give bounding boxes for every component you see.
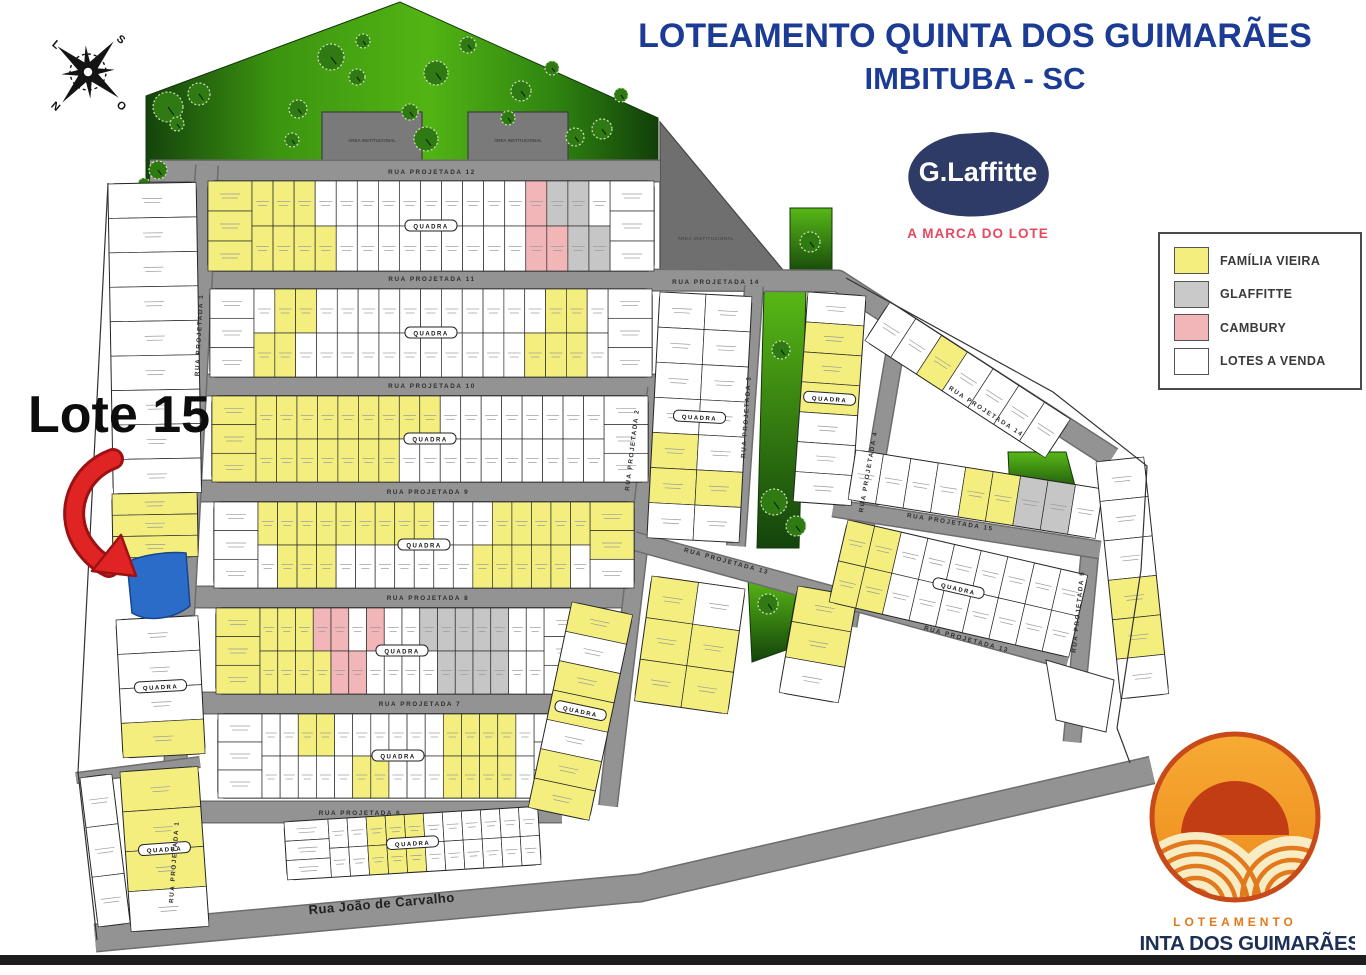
lot bbox=[208, 241, 252, 271]
lot bbox=[1096, 457, 1148, 501]
lot bbox=[504, 289, 525, 333]
tree-icon bbox=[460, 37, 476, 53]
quadra-block bbox=[108, 182, 201, 493]
lot bbox=[1113, 615, 1165, 659]
lot bbox=[313, 608, 331, 651]
lot bbox=[425, 756, 443, 798]
lot bbox=[254, 289, 275, 333]
lot bbox=[482, 838, 503, 868]
lot bbox=[420, 651, 438, 694]
legend-item: GLAFFITTE bbox=[1174, 281, 1346, 308]
lot bbox=[700, 365, 748, 403]
lot bbox=[316, 756, 334, 798]
lot bbox=[379, 333, 400, 377]
lot bbox=[444, 840, 465, 870]
lot bbox=[297, 439, 317, 482]
legend-swatch bbox=[1174, 247, 1209, 274]
lot bbox=[80, 774, 118, 828]
lot bbox=[358, 439, 378, 482]
tree-icon bbox=[414, 127, 438, 151]
street-label: RUA PROJETADA 11 bbox=[388, 276, 475, 283]
street-label: RUA PROJETADA 10 bbox=[388, 383, 476, 390]
lot bbox=[395, 545, 415, 588]
compass-icon: L S N O bbox=[36, 20, 140, 124]
lot bbox=[520, 835, 541, 865]
lot bbox=[252, 226, 273, 271]
lot bbox=[525, 333, 546, 377]
lot bbox=[216, 637, 260, 666]
lot bbox=[349, 846, 370, 876]
quadra-label: QUADRA bbox=[380, 755, 415, 761]
lot bbox=[357, 226, 378, 271]
lot bbox=[543, 439, 563, 482]
lot bbox=[440, 439, 460, 482]
lot bbox=[112, 493, 197, 516]
lot bbox=[531, 545, 551, 588]
quadra-label: QUADRA bbox=[412, 438, 447, 444]
lot bbox=[275, 333, 296, 377]
lot bbox=[492, 502, 512, 545]
lot bbox=[317, 439, 337, 482]
lot bbox=[368, 845, 389, 875]
lot bbox=[218, 770, 262, 798]
lot bbox=[498, 714, 516, 756]
lot bbox=[441, 333, 462, 377]
lot bbox=[256, 396, 276, 439]
quadra-block: QUADRA bbox=[214, 502, 634, 588]
lot bbox=[484, 181, 505, 226]
lot bbox=[276, 396, 296, 439]
lot bbox=[646, 576, 698, 624]
lot bbox=[793, 472, 853, 506]
lot bbox=[425, 714, 443, 756]
lot bbox=[480, 809, 501, 839]
lot bbox=[693, 505, 741, 543]
lot bbox=[262, 756, 280, 798]
lot bbox=[379, 289, 400, 333]
lot bbox=[795, 442, 855, 476]
quadra-label: QUADRA bbox=[406, 544, 441, 550]
brand-tagline: A MARCA DO LOTE bbox=[907, 226, 1049, 241]
lot bbox=[121, 719, 205, 758]
lot bbox=[462, 333, 483, 377]
lot bbox=[338, 396, 358, 439]
lot bbox=[400, 289, 421, 333]
lot bbox=[522, 396, 542, 439]
lot bbox=[278, 545, 298, 588]
lot bbox=[399, 439, 419, 482]
lot bbox=[563, 439, 583, 482]
legend-swatch bbox=[1174, 348, 1209, 375]
tree-icon bbox=[545, 61, 559, 75]
lot bbox=[260, 608, 278, 651]
lot bbox=[375, 545, 395, 588]
lot bbox=[330, 847, 351, 877]
tree-icon bbox=[592, 119, 612, 139]
lot bbox=[566, 333, 587, 377]
lot bbox=[389, 756, 407, 798]
quadra-block: QUADRA bbox=[116, 616, 205, 758]
lot bbox=[491, 608, 509, 651]
lot bbox=[693, 583, 745, 631]
lot bbox=[280, 714, 298, 756]
lot bbox=[216, 665, 260, 694]
tree-icon bbox=[424, 61, 448, 85]
lot bbox=[280, 756, 298, 798]
lot bbox=[420, 226, 441, 271]
quadra-block: QUADRA bbox=[120, 767, 209, 932]
brand-logo: G.Laffitte A MARCA DO LOTE bbox=[888, 126, 1068, 246]
lot bbox=[110, 320, 199, 356]
lot bbox=[296, 651, 314, 694]
lot bbox=[210, 348, 254, 377]
lot bbox=[512, 502, 532, 545]
street-label: RUA PROJETADA 9 bbox=[387, 489, 470, 496]
lot bbox=[547, 181, 568, 226]
lot bbox=[442, 181, 463, 226]
lot bbox=[356, 502, 376, 545]
lot bbox=[298, 756, 316, 798]
tree-icon bbox=[349, 69, 365, 85]
lot bbox=[453, 545, 473, 588]
lot bbox=[483, 289, 504, 333]
institutional-area bbox=[660, 122, 788, 276]
lot bbox=[112, 514, 197, 537]
footer-logo-line1: LOTEAMENTO bbox=[1173, 915, 1297, 929]
lot bbox=[505, 226, 526, 271]
lot bbox=[315, 181, 336, 226]
lot bbox=[317, 545, 337, 588]
street-label: RUA PROJETADA 6 bbox=[319, 810, 402, 817]
lot bbox=[608, 318, 652, 347]
lot bbox=[504, 333, 525, 377]
lot bbox=[518, 806, 539, 836]
lot bbox=[214, 559, 258, 588]
lot bbox=[798, 412, 858, 446]
lot bbox=[501, 837, 522, 867]
lot bbox=[499, 808, 520, 838]
compass-n: N bbox=[48, 100, 62, 114]
legend-swatch bbox=[1174, 314, 1209, 341]
lot bbox=[455, 608, 473, 651]
tree-icon bbox=[800, 232, 820, 252]
lot bbox=[687, 624, 739, 672]
lot bbox=[278, 651, 296, 694]
lot bbox=[512, 545, 532, 588]
lot bbox=[218, 742, 262, 770]
lot bbox=[273, 181, 294, 226]
lot bbox=[702, 330, 750, 368]
tree-icon bbox=[149, 161, 167, 179]
lot bbox=[608, 289, 652, 318]
lot bbox=[547, 226, 568, 271]
lot bbox=[551, 502, 571, 545]
lot bbox=[551, 545, 571, 588]
lot bbox=[208, 181, 252, 211]
lot bbox=[604, 396, 648, 425]
lot bbox=[317, 502, 337, 545]
lot bbox=[316, 333, 337, 377]
lot bbox=[491, 651, 509, 694]
tree-icon bbox=[318, 44, 344, 70]
quadra-label: QUADRA bbox=[384, 650, 419, 656]
lot bbox=[86, 824, 124, 878]
lot bbox=[331, 608, 349, 651]
lot bbox=[367, 651, 385, 694]
tree-icon bbox=[356, 34, 370, 48]
lot bbox=[338, 439, 358, 482]
lot bbox=[1104, 536, 1156, 580]
lot bbox=[349, 651, 367, 694]
legend-item: LOTES A VENDA bbox=[1174, 348, 1346, 375]
lot bbox=[505, 181, 526, 226]
lot bbox=[509, 608, 527, 651]
lot bbox=[316, 714, 334, 756]
lot bbox=[610, 181, 654, 211]
lot bbox=[379, 396, 399, 439]
lot bbox=[461, 439, 481, 482]
lot bbox=[568, 181, 589, 226]
lot bbox=[337, 289, 358, 333]
lot bbox=[420, 439, 440, 482]
lot bbox=[296, 333, 317, 377]
bottom-bar bbox=[0, 955, 1366, 965]
lot bbox=[278, 502, 298, 545]
lot bbox=[262, 714, 280, 756]
lot bbox=[584, 396, 604, 439]
lot bbox=[273, 226, 294, 271]
lote-15-callout: Lote 15 bbox=[28, 386, 210, 444]
tree-icon bbox=[786, 516, 806, 536]
lot bbox=[294, 181, 315, 226]
lot bbox=[358, 333, 379, 377]
lot bbox=[371, 756, 389, 798]
lot bbox=[275, 289, 296, 333]
tree-icon bbox=[511, 81, 531, 101]
lot bbox=[414, 545, 434, 588]
lot bbox=[526, 181, 547, 226]
lot bbox=[543, 396, 563, 439]
site-plan-page: { "title": {"line1": "LOTEAMENTO QUINTA … bbox=[0, 0, 1366, 975]
footer-logo-line2: QUINTA DOS GUIMARÃES bbox=[1140, 932, 1355, 955]
quadra-block: QUADRA bbox=[216, 608, 588, 694]
lot bbox=[640, 618, 692, 666]
lot bbox=[375, 502, 395, 545]
lot bbox=[658, 292, 706, 330]
lot bbox=[109, 251, 198, 287]
footer-logo: LOTEAMENTO QUINTA DOS GUIMARÃES bbox=[1140, 724, 1355, 972]
lot bbox=[442, 811, 463, 841]
lot bbox=[492, 545, 512, 588]
lot bbox=[353, 756, 371, 798]
lot bbox=[525, 289, 546, 333]
lot bbox=[563, 396, 583, 439]
lot bbox=[336, 181, 357, 226]
lot bbox=[276, 439, 296, 482]
lot bbox=[649, 467, 697, 505]
institutional-label: ÁREA INSTITUCIONAL bbox=[678, 235, 735, 241]
lot bbox=[584, 439, 604, 482]
lot bbox=[212, 453, 256, 482]
lot bbox=[212, 425, 256, 454]
lot bbox=[546, 333, 567, 377]
lot bbox=[353, 714, 371, 756]
lot bbox=[337, 333, 358, 377]
lot bbox=[349, 608, 367, 651]
lot bbox=[481, 396, 501, 439]
tree-icon bbox=[761, 489, 787, 515]
lot bbox=[284, 819, 329, 841]
lot bbox=[634, 659, 686, 707]
lot bbox=[278, 608, 296, 651]
lot bbox=[463, 181, 484, 226]
lot bbox=[356, 545, 376, 588]
lot bbox=[608, 348, 652, 377]
lot bbox=[258, 502, 278, 545]
lot bbox=[357, 181, 378, 226]
legend-box: FAMÍLIA VIEIRAGLAFFITTECAMBURYLOTES A VE… bbox=[1158, 232, 1362, 390]
lot bbox=[113, 458, 202, 494]
lot bbox=[317, 396, 337, 439]
tree-icon bbox=[285, 133, 299, 147]
lot bbox=[358, 396, 378, 439]
lot bbox=[252, 181, 273, 226]
lot bbox=[502, 396, 522, 439]
lot bbox=[590, 531, 634, 560]
lot bbox=[384, 651, 402, 694]
lot bbox=[336, 502, 356, 545]
lot bbox=[331, 651, 349, 694]
lot bbox=[546, 289, 567, 333]
tree-icon bbox=[188, 83, 210, 105]
quadra-label: QUADRA bbox=[413, 332, 448, 338]
lot bbox=[378, 181, 399, 226]
street-label: RUA PROJETADA 12 bbox=[388, 169, 476, 176]
lot bbox=[218, 714, 262, 742]
lot bbox=[461, 396, 481, 439]
lot bbox=[522, 439, 542, 482]
tree-icon bbox=[772, 341, 790, 359]
lot bbox=[108, 182, 197, 218]
lot bbox=[313, 651, 331, 694]
legend-item: CAMBURY bbox=[1174, 314, 1346, 341]
lot bbox=[568, 226, 589, 271]
lot bbox=[286, 858, 331, 880]
lot bbox=[216, 608, 260, 637]
lot bbox=[297, 502, 317, 545]
lot bbox=[590, 502, 634, 531]
lot bbox=[212, 396, 256, 425]
lot bbox=[254, 333, 275, 377]
lot bbox=[502, 439, 522, 482]
legend-label: FAMÍLIA VIEIRA bbox=[1220, 254, 1320, 268]
street-label: RUA PROJETADA 8 bbox=[387, 595, 470, 602]
quadra-block: QUADRA bbox=[218, 714, 578, 798]
tree-icon bbox=[501, 111, 515, 125]
lot bbox=[294, 226, 315, 271]
lot bbox=[438, 608, 456, 651]
lot bbox=[516, 714, 534, 756]
street-label: RUA PROJETADA 14 bbox=[672, 279, 760, 286]
boundary-lots bbox=[1046, 660, 1114, 732]
lote-15-highlight[interactable] bbox=[127, 552, 190, 618]
brand-name: G.Laffitte bbox=[919, 157, 1038, 187]
lot bbox=[434, 545, 454, 588]
lot bbox=[335, 756, 353, 798]
tree-icon bbox=[402, 104, 418, 120]
lot bbox=[461, 714, 479, 756]
lot bbox=[473, 545, 493, 588]
lot bbox=[526, 226, 547, 271]
tree-icon bbox=[758, 594, 778, 614]
lot bbox=[647, 503, 695, 541]
lot bbox=[697, 435, 745, 473]
lot bbox=[214, 531, 258, 560]
lot bbox=[610, 241, 654, 271]
lot bbox=[654, 362, 702, 400]
lot bbox=[400, 333, 421, 377]
quadra-block bbox=[1096, 457, 1169, 699]
lot bbox=[297, 545, 317, 588]
tree-icon bbox=[170, 117, 184, 131]
lot bbox=[481, 439, 501, 482]
lot bbox=[336, 545, 356, 588]
lot bbox=[473, 502, 493, 545]
lot bbox=[366, 816, 387, 846]
tree-icon bbox=[566, 128, 584, 146]
lot bbox=[806, 292, 866, 326]
quadra-block: QUADRA bbox=[212, 396, 648, 482]
compass-o: O bbox=[114, 99, 129, 114]
lot bbox=[210, 318, 254, 347]
street-label: RUA PROJETADA 7 bbox=[379, 701, 462, 708]
lot bbox=[695, 470, 743, 508]
lot bbox=[110, 286, 199, 322]
tree-icon bbox=[289, 100, 307, 118]
lot bbox=[420, 181, 441, 226]
lot bbox=[461, 810, 482, 840]
title-line1: LOTEAMENTO QUINTA DOS GUIMARÃES bbox=[590, 14, 1360, 59]
lot bbox=[399, 226, 420, 271]
quadra-block: QUADRA bbox=[210, 289, 652, 377]
lot bbox=[484, 226, 505, 271]
lot bbox=[589, 181, 610, 226]
lot bbox=[296, 608, 314, 651]
lot bbox=[328, 818, 349, 848]
lot bbox=[704, 294, 752, 332]
legend-swatch bbox=[1174, 281, 1209, 308]
lot bbox=[421, 333, 442, 377]
lot bbox=[587, 289, 608, 333]
lot bbox=[208, 211, 252, 241]
lot bbox=[336, 226, 357, 271]
lot bbox=[651, 432, 699, 470]
lot bbox=[473, 651, 491, 694]
lot bbox=[378, 226, 399, 271]
lot bbox=[463, 839, 484, 869]
lot bbox=[461, 756, 479, 798]
lot bbox=[210, 289, 254, 318]
lot bbox=[604, 425, 648, 454]
lot bbox=[120, 767, 201, 812]
lot bbox=[462, 289, 483, 333]
lot bbox=[480, 756, 498, 798]
lot bbox=[804, 322, 864, 356]
lot bbox=[407, 756, 425, 798]
quadra-block: QUADRA bbox=[208, 181, 654, 271]
legend-label: CAMBURY bbox=[1220, 321, 1286, 335]
lot bbox=[258, 545, 278, 588]
